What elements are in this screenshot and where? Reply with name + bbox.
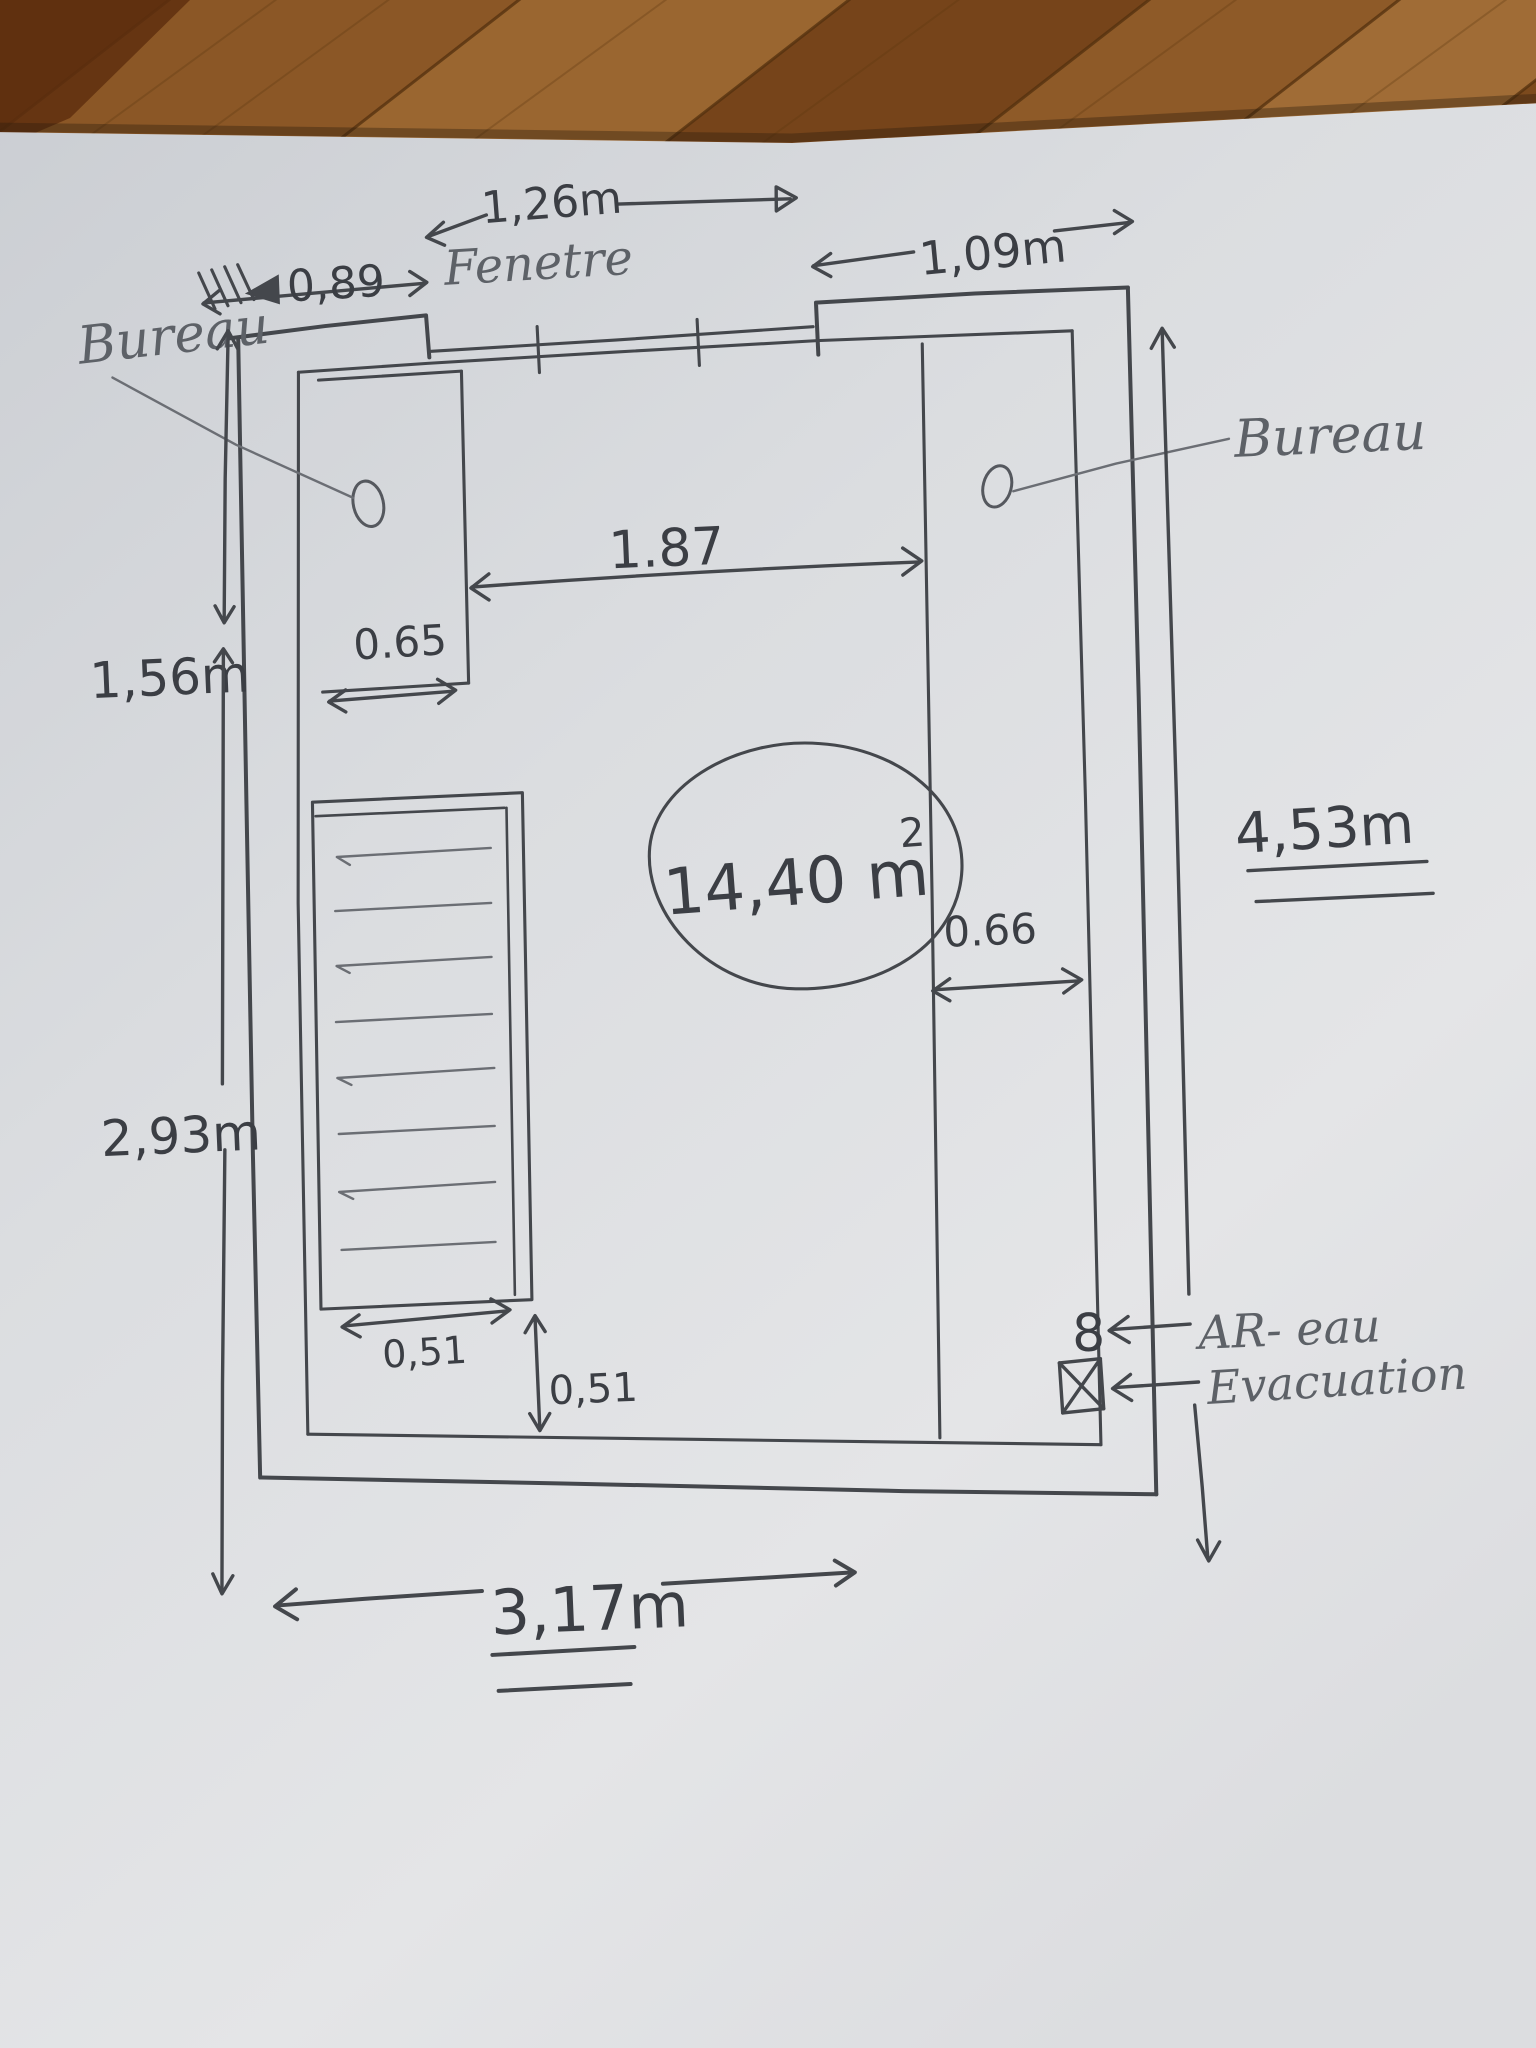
water-supply-symbol: 8 (1072, 1304, 1106, 1364)
dim-value: 4,53m (1233, 792, 1416, 868)
paper-sheet (0, 103, 1536, 2048)
dim-value: 0.65 (352, 615, 448, 669)
dim-value: 2,93m (100, 1103, 262, 1168)
dim-value: 0,51 (381, 1328, 468, 1377)
dim-value: 0,51 (548, 1365, 639, 1415)
dim-value: 0.66 (942, 904, 1037, 957)
dim-value: 3,17m (489, 1568, 690, 1649)
water-supply-label: AR- eau (1193, 1298, 1381, 1360)
window-label: Fenetre (441, 230, 634, 297)
photo-of-floorplan-sketch: 0,89 1,26m Fenetre 1,09m Bureau Bureau (0, 0, 1536, 2048)
area-exponent: 2 (898, 809, 927, 857)
desk-label-right: Bureau (1232, 402, 1427, 470)
dim-value: 1.87 (607, 517, 725, 582)
floorplan-sketch: 0,89 1,26m Fenetre 1,09m Bureau Bureau (0, 0, 1536, 2048)
dim-value: 0,89 (285, 256, 386, 313)
dim-value: 1,26m (479, 173, 623, 235)
